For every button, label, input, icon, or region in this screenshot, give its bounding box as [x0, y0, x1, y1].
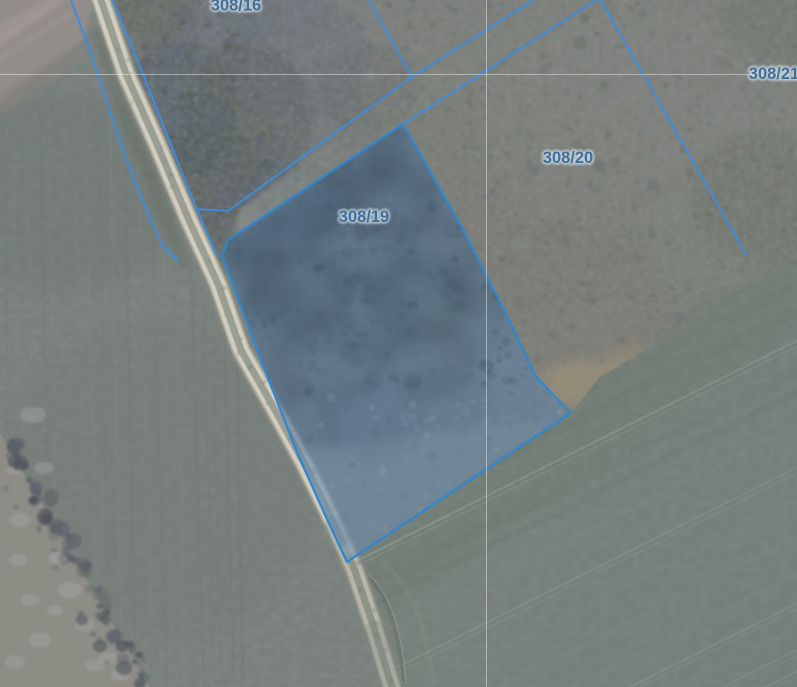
svg-text:308/20: 308/20: [543, 149, 593, 167]
svg-text:308/21: 308/21: [749, 65, 797, 83]
svg-text:308/19: 308/19: [339, 208, 389, 226]
svg-text:308/16: 308/16: [211, 0, 261, 15]
